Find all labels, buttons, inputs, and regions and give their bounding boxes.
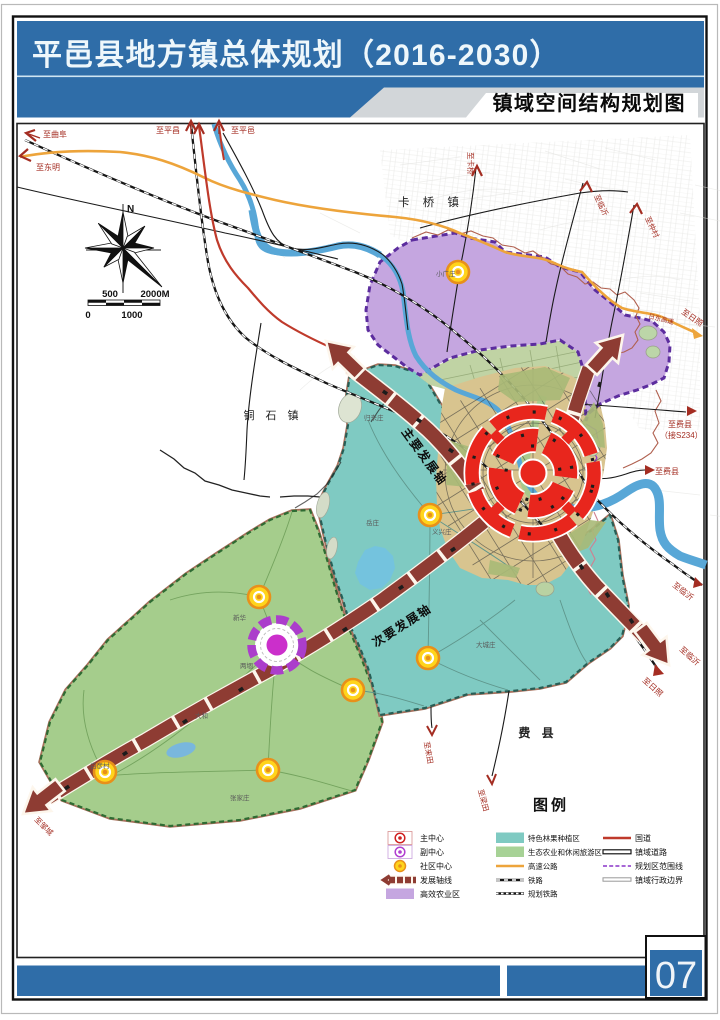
svg-text:两堌: 两堌 <box>240 662 254 670</box>
svg-text:07: 07 <box>655 955 697 997</box>
svg-text:社区中心: 社区中心 <box>420 861 452 871</box>
svg-text:N: N <box>127 204 134 215</box>
svg-text:国道: 国道 <box>635 833 651 843</box>
svg-text:高速公路: 高速公路 <box>528 862 558 871</box>
svg-text:小广庄: 小广庄 <box>436 269 456 278</box>
svg-text:生态农业和休闲旅游区: 生态农业和休闲旅游区 <box>528 848 603 857</box>
svg-text:张家庄: 张家庄 <box>230 793 250 802</box>
svg-text:镇域道路: 镇域道路 <box>635 847 667 857</box>
svg-text:至平邑: 至平邑 <box>231 126 255 135</box>
svg-text:特色林果种植区: 特色林果种植区 <box>528 834 580 843</box>
svg-text:发展轴线: 发展轴线 <box>420 875 452 885</box>
svg-text:义兴庄: 义兴庄 <box>432 527 452 536</box>
svg-text:规划铁路: 规划铁路 <box>528 890 558 899</box>
svg-text:白彦村: 白彦村 <box>90 761 110 770</box>
svg-text:大城庄: 大城庄 <box>476 640 496 649</box>
svg-text:大和: 大和 <box>195 711 208 720</box>
svg-text:费 县: 费 县 <box>518 725 557 740</box>
svg-text:图例: 图例 <box>533 796 569 814</box>
svg-text:0: 0 <box>85 310 90 321</box>
svg-text:平邑县地方镇总体规划（2016-2030）: 平邑县地方镇总体规划（2016-2030） <box>32 38 561 72</box>
svg-text:高效农业区: 高效农业区 <box>420 889 460 899</box>
svg-text:镇域空间结构规划图: 镇域空间结构规划图 <box>493 91 687 115</box>
svg-text:副中心: 副中心 <box>420 847 444 857</box>
svg-text:铜 石 镇: 铜 石 镇 <box>243 408 302 422</box>
svg-text:2000M: 2000M <box>140 289 169 300</box>
svg-text:至费县: 至费县 <box>668 419 692 429</box>
svg-text:至曲阜: 至曲阜 <box>43 129 67 139</box>
svg-text:卡 桥 镇: 卡 桥 镇 <box>398 195 464 209</box>
svg-text:归来庄: 归来庄 <box>364 413 384 422</box>
svg-text:至卡桥: 至卡桥 <box>466 152 476 175</box>
svg-text:岳庄: 岳庄 <box>366 518 380 527</box>
svg-text:500: 500 <box>102 289 118 300</box>
svg-text:1000: 1000 <box>121 310 142 321</box>
svg-text:（接S234）: （接S234） <box>660 430 703 440</box>
svg-text:至费县: 至费县 <box>655 466 679 476</box>
svg-text:规划区范围线: 规划区范围线 <box>635 861 683 871</box>
svg-text:至平昌: 至平昌 <box>156 126 180 135</box>
svg-text:铁路: 铁路 <box>528 876 543 885</box>
svg-text:新华: 新华 <box>233 613 247 622</box>
svg-text:至东明: 至东明 <box>36 162 60 172</box>
svg-text:主中心: 主中心 <box>420 833 444 843</box>
svg-text:镇域行政边界: 镇域行政边界 <box>635 875 683 885</box>
